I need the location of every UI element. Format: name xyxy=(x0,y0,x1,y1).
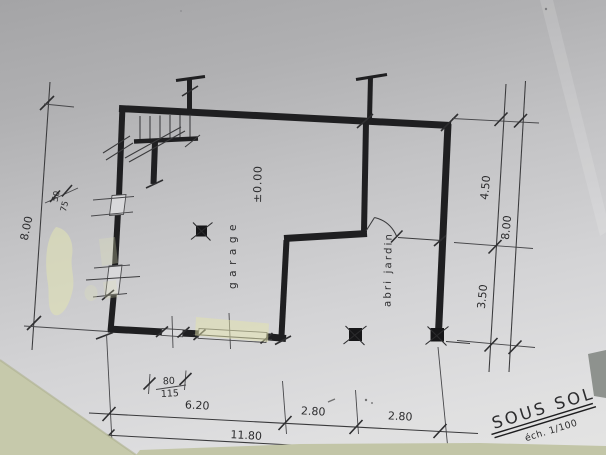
room-label-garage: garage xyxy=(227,219,239,289)
dimension-bottom: 6.20 2.80 2.80 11.80 80 115 xyxy=(85,334,480,455)
dim-label-bottom-3: 2.80 xyxy=(388,409,413,423)
wall-break-tick xyxy=(103,136,130,153)
paper-speck xyxy=(180,10,182,12)
dim-label-left-total: 8.00 xyxy=(18,215,36,242)
dim-label-bottom-total: 11.80 xyxy=(230,428,262,443)
dim-label-detail-h: 115 xyxy=(161,388,180,400)
dim-tick xyxy=(514,114,527,128)
dim-tick xyxy=(40,96,54,110)
wall-bottom-1 xyxy=(108,329,163,332)
highlighter-blob xyxy=(85,285,98,301)
floorplan-drawing: 8.00 50 75 4.50 3.50 8.00 6.20 2.80 2. xyxy=(0,0,606,455)
level-label: ±0.00 xyxy=(251,165,265,203)
room-label-abri-jardin: abri jardin xyxy=(383,232,395,307)
dim-label-detail-w: 80 xyxy=(163,376,176,388)
title-block: SOUS SOL éch. 1/100 xyxy=(486,384,603,454)
dim-label-bottom-2: 2.80 xyxy=(301,404,326,418)
pencil-dot xyxy=(365,399,367,401)
photographed-floorplan: 8.00 50 75 4.50 3.50 8.00 6.20 2.80 2. xyxy=(0,0,606,455)
door-leaf xyxy=(366,218,375,232)
wall-interior-horizontal xyxy=(284,234,367,239)
highlighter-wall-mark xyxy=(103,280,118,299)
pencil-dash xyxy=(328,399,335,402)
dim-line-segments xyxy=(89,413,478,434)
dimension-right: 4.50 3.50 8.00 xyxy=(452,81,539,372)
highlighter-wall-mark xyxy=(99,237,118,266)
paper-speck xyxy=(545,8,547,10)
dim-tick xyxy=(495,113,508,127)
paper-artifacts xyxy=(180,0,606,404)
wall-partition xyxy=(282,240,287,336)
door-axis-line xyxy=(172,316,173,348)
witness-line xyxy=(452,119,539,124)
dim-label-detail-b: 75 xyxy=(59,200,71,213)
dim-tick xyxy=(489,240,502,254)
paper-crease xyxy=(540,0,606,236)
abri-edge-line xyxy=(398,238,442,241)
wall-foot-line xyxy=(446,342,470,344)
wall-top xyxy=(119,109,451,126)
table-strip-bottom xyxy=(136,443,606,455)
witness-line xyxy=(438,347,449,455)
stub-wall xyxy=(370,77,371,120)
wall-right xyxy=(439,124,449,333)
wall-interior-vertical xyxy=(364,122,366,232)
witness-line xyxy=(457,341,535,348)
witness-line xyxy=(24,326,108,332)
dim-label-bottom-1: 6.20 xyxy=(185,398,210,412)
dim-tick xyxy=(62,185,72,197)
dim-label-right-lower: 3.50 xyxy=(475,284,490,310)
dim-line xyxy=(32,82,50,350)
dim-label-right-upper: 4.50 xyxy=(478,175,493,201)
dim-label-right-total: 8.00 xyxy=(499,215,514,241)
highlighter-blob xyxy=(46,227,73,315)
door-swing xyxy=(366,218,446,247)
drawing-title: SOUS SOL xyxy=(490,384,597,433)
pencil-dot xyxy=(371,402,373,404)
column-tick xyxy=(193,223,211,241)
table-background xyxy=(0,350,606,455)
corner-tick xyxy=(96,333,113,340)
